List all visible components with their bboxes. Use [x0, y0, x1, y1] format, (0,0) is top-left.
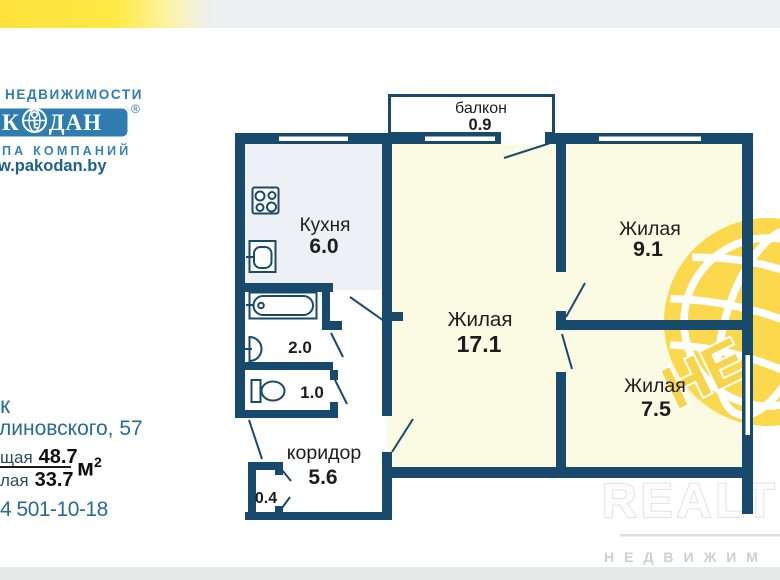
- realt-watermark: REALT НЕДВИЖИМ: [602, 475, 780, 565]
- bathtub-icon: [246, 293, 317, 319]
- toilet-area: 1.0: [300, 383, 324, 402]
- bottom-gray-strip: [0, 567, 780, 580]
- living-main-label: Жилая: [448, 308, 513, 331]
- washbasin-icon: [245, 337, 262, 361]
- kitchen-sink-icon: [246, 241, 276, 272]
- corridor-label: коридор: [287, 442, 362, 464]
- living3-area: 7.5: [641, 397, 671, 421]
- floorplan: НЕ REALT НЕДВИЖИМ: [0, 0, 780, 580]
- living-main-area: 17.1: [457, 331, 502, 357]
- stove-icon: [253, 188, 279, 214]
- balcony-door-opening: [501, 132, 545, 145]
- kitchen-window: [278, 136, 349, 143]
- living2-window: [598, 136, 702, 143]
- living3-window: [745, 354, 752, 436]
- corridor-area: 5.6: [308, 466, 337, 489]
- realt-watermark-divider: [620, 534, 780, 537]
- bathroom-area: 2.0: [288, 338, 312, 357]
- living3-label: Жилая: [624, 375, 686, 397]
- kitchen-label: Кухня: [300, 215, 351, 236]
- balcony-area: 0.9: [469, 116, 492, 134]
- realt-watermark-subtitle: НЕДВИЖИМ: [604, 549, 768, 565]
- kitchen-area: 6.0: [309, 235, 338, 258]
- toilet-icon: [252, 380, 285, 402]
- closet-area: 0.4: [255, 490, 277, 507]
- balcony-window: [424, 136, 496, 143]
- balcony-label: балкон: [455, 100, 507, 117]
- living2-area: 9.1: [633, 237, 663, 261]
- page: НЕДВИЖИМОСТИ К ДАН ® ПА КОМПАНИЙ w.pakod…: [0, 0, 780, 580]
